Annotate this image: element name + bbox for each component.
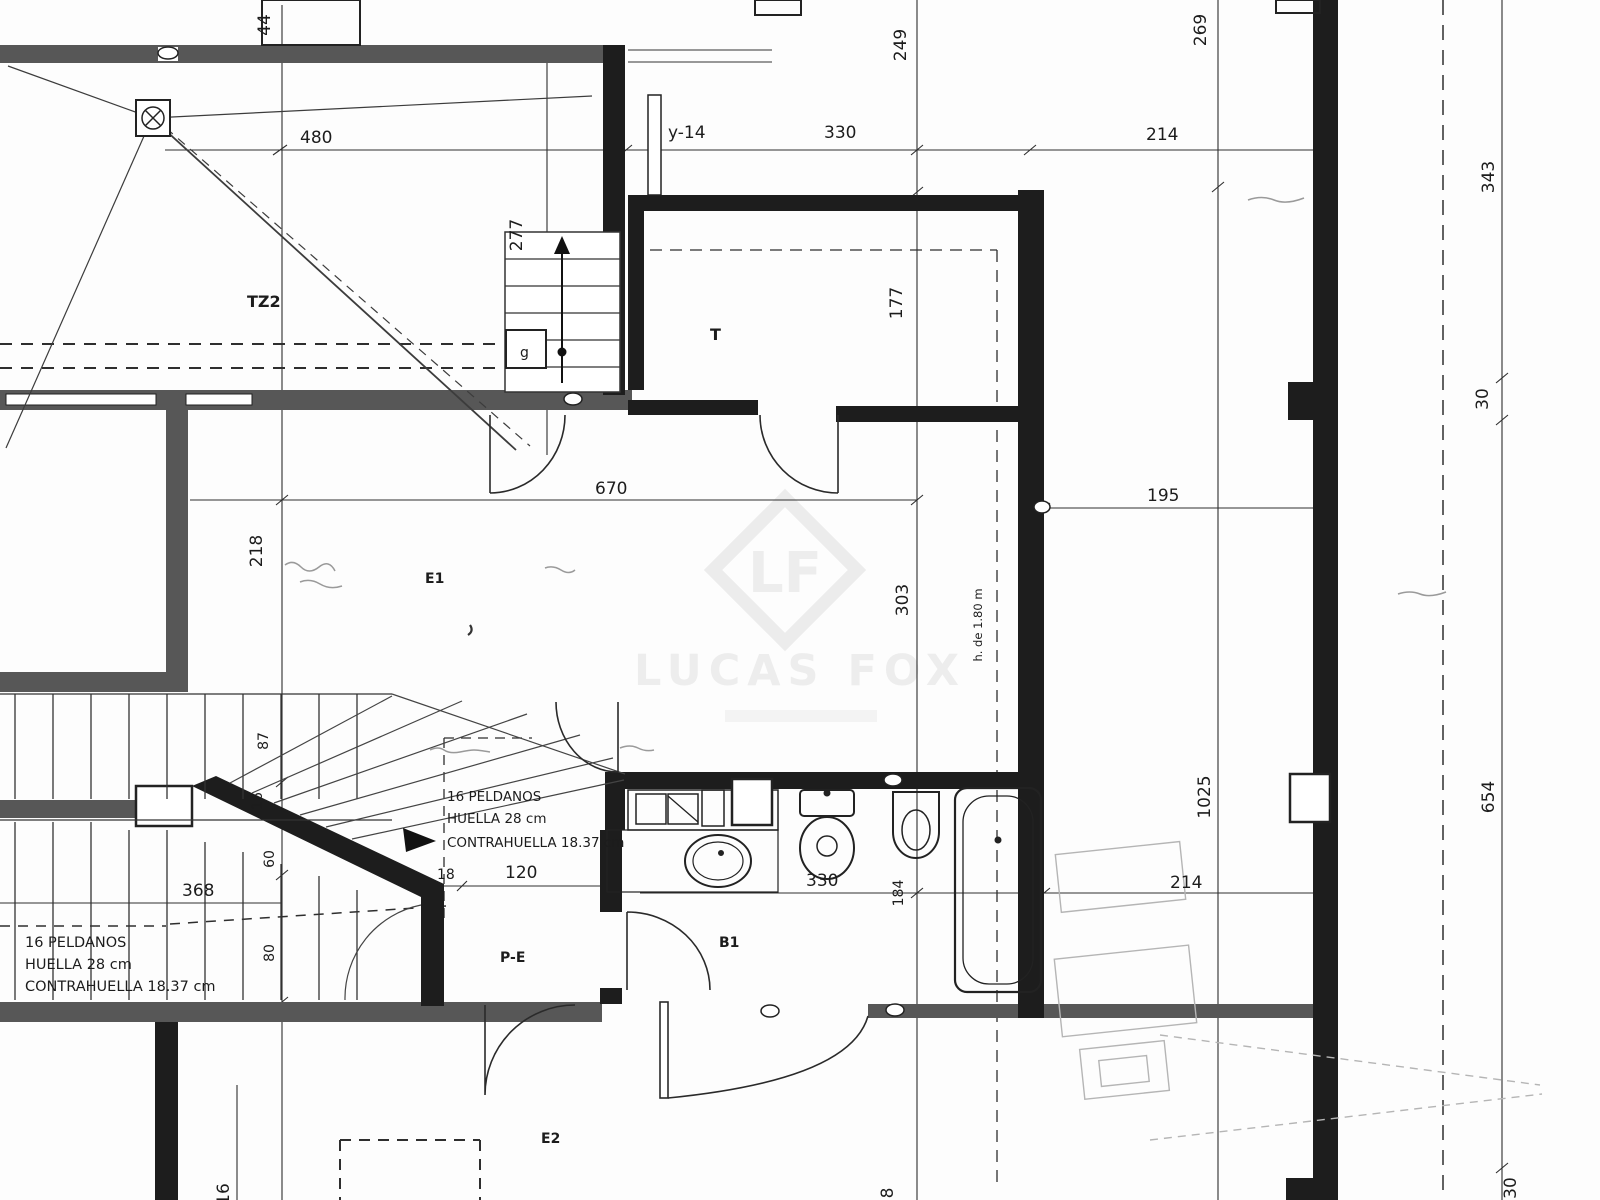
bidet-icon xyxy=(893,792,939,858)
floorplan-page: LF LUCAS FOX xyxy=(0,0,1600,1200)
dim-249: 249 xyxy=(891,29,911,61)
dim-1025: 1025 xyxy=(1195,775,1215,818)
dim-16-mid: 16 xyxy=(250,792,266,810)
dim-368: 368 xyxy=(182,881,214,901)
annotation-height-line: h. de 1.80 m xyxy=(971,588,985,661)
door-arc-e2 xyxy=(668,1016,868,1098)
dim-654: 654 xyxy=(1479,781,1499,813)
stair-treads-flight-b xyxy=(15,822,357,1000)
room-label-e1: E1 xyxy=(425,571,444,587)
watermark-text: LUCAS FOX xyxy=(634,646,966,696)
labels: TZ2 T E1 P-E B1 E2 480 y-14 330 214 670 … xyxy=(25,14,1521,1200)
toilet-icon xyxy=(800,790,854,879)
room-label-pe: P-E xyxy=(500,950,525,966)
wall-stair-landing xyxy=(0,800,136,818)
dim-80: 80 xyxy=(262,944,278,962)
walls xyxy=(0,0,1338,1200)
dim-18: 18 xyxy=(437,867,455,883)
stair-direction-arrow-icon xyxy=(403,828,436,852)
door-leaf-e2 xyxy=(660,1002,668,1098)
watermark-subline xyxy=(725,710,877,722)
wall-right-pillar xyxy=(1288,382,1313,420)
dim-60: 60 xyxy=(262,850,278,868)
stairs-upper: g xyxy=(505,232,620,392)
dim-195: 195 xyxy=(1147,486,1179,506)
dim-87: 87 xyxy=(256,732,272,750)
dim-218: 218 xyxy=(247,535,267,567)
stair-box-label: g xyxy=(520,345,529,361)
wall-t-top xyxy=(628,195,1044,211)
box-top-left xyxy=(262,0,360,45)
dim-30-right: 30 xyxy=(1473,388,1493,410)
wall-bottom-left xyxy=(0,1002,602,1022)
dim-8-bottom: 8 xyxy=(878,1188,898,1199)
wall-e1-top-b xyxy=(836,406,1020,422)
stair-start-dot xyxy=(558,348,567,357)
stair-note-left-line2: HUELLA 28 cm xyxy=(25,957,132,973)
box-top-middle xyxy=(755,0,801,15)
dim-177: 177 xyxy=(887,287,907,319)
dim-269: 269 xyxy=(1191,14,1211,46)
door-arc-e1-terrace xyxy=(490,415,565,493)
window-vertical xyxy=(648,95,661,195)
wall-right-facade xyxy=(1313,0,1338,1200)
room-label-b1: B1 xyxy=(719,935,739,951)
wall-bathroom-top xyxy=(605,772,1018,789)
dim-343: 343 xyxy=(1479,161,1499,193)
stair-note-right-line1: 16 PELDANOS xyxy=(447,789,541,805)
dim-120: 120 xyxy=(505,863,537,883)
dim-44: 44 xyxy=(255,14,275,36)
facade-ledge-lines xyxy=(628,50,772,62)
window-slot-2 xyxy=(186,394,252,405)
stair-note-left-line3: CONTRAHUELLA 18.37 cm xyxy=(25,979,216,995)
stair-note-left-line1: 16 PELDANOS xyxy=(25,935,126,951)
dim-330-bath: 330 xyxy=(806,871,838,891)
annotation-y14: y-14 xyxy=(668,123,706,143)
dim-303: 303 xyxy=(893,584,913,616)
door-arc-t-room xyxy=(760,415,838,493)
dim-330-top: 330 xyxy=(824,123,856,143)
dim-277: 277 xyxy=(507,219,527,251)
wall-top xyxy=(0,45,625,63)
washbasin-icon xyxy=(685,835,751,887)
wall-bathroom-left-cap xyxy=(605,789,625,830)
wall-e2-left xyxy=(155,1022,178,1200)
dim-480: 480 xyxy=(300,128,332,148)
wall-t-left xyxy=(628,211,644,390)
appliance-box xyxy=(732,779,772,825)
dim-184: 184 xyxy=(891,880,907,907)
dim-214-top: 214 xyxy=(1146,125,1178,145)
kitchen-sink-icon xyxy=(636,794,666,824)
wall-stair-diagonal xyxy=(192,776,444,1006)
wall-e1-top-a xyxy=(628,400,758,415)
dim-670: 670 xyxy=(595,479,627,499)
room-label-t: T xyxy=(710,325,721,344)
stair-note-right-line3: CONTRAHUELLA 18.37 cm xyxy=(447,835,624,851)
wall-bottom-right xyxy=(868,1004,1330,1018)
wall-left-lower xyxy=(0,672,166,692)
stair-note-right-line2: HUELLA 28 cm xyxy=(447,811,546,827)
stair-treads-flight-a xyxy=(15,694,357,799)
stair-note-left: 16 PELDANOS HUELLA 28 cm CONTRAHUELLA 18… xyxy=(25,935,216,995)
wall-pe-right-lower xyxy=(600,988,622,1004)
dim-16-bottom: 16 xyxy=(214,1183,234,1200)
room-label-tz2: TZ2 xyxy=(247,292,281,311)
dim-30-bottom: 30 xyxy=(1501,1177,1521,1199)
wall-right-bottom-pillar xyxy=(1286,1178,1332,1200)
watermark: LF LUCAS FOX xyxy=(634,498,966,722)
kitchen-hob-icon xyxy=(702,790,724,826)
wall-left-vertical xyxy=(166,410,188,692)
dim-214-bottom: 214 xyxy=(1170,873,1202,893)
room-label-e2: E2 xyxy=(541,1131,560,1147)
door-arc-b1 xyxy=(627,912,710,990)
watermark-logo: LF xyxy=(748,541,822,606)
box-right-wall xyxy=(1290,774,1330,822)
window-slot-1 xyxy=(6,394,156,405)
floor-plan-svg: LF LUCAS FOX xyxy=(0,0,1600,1200)
